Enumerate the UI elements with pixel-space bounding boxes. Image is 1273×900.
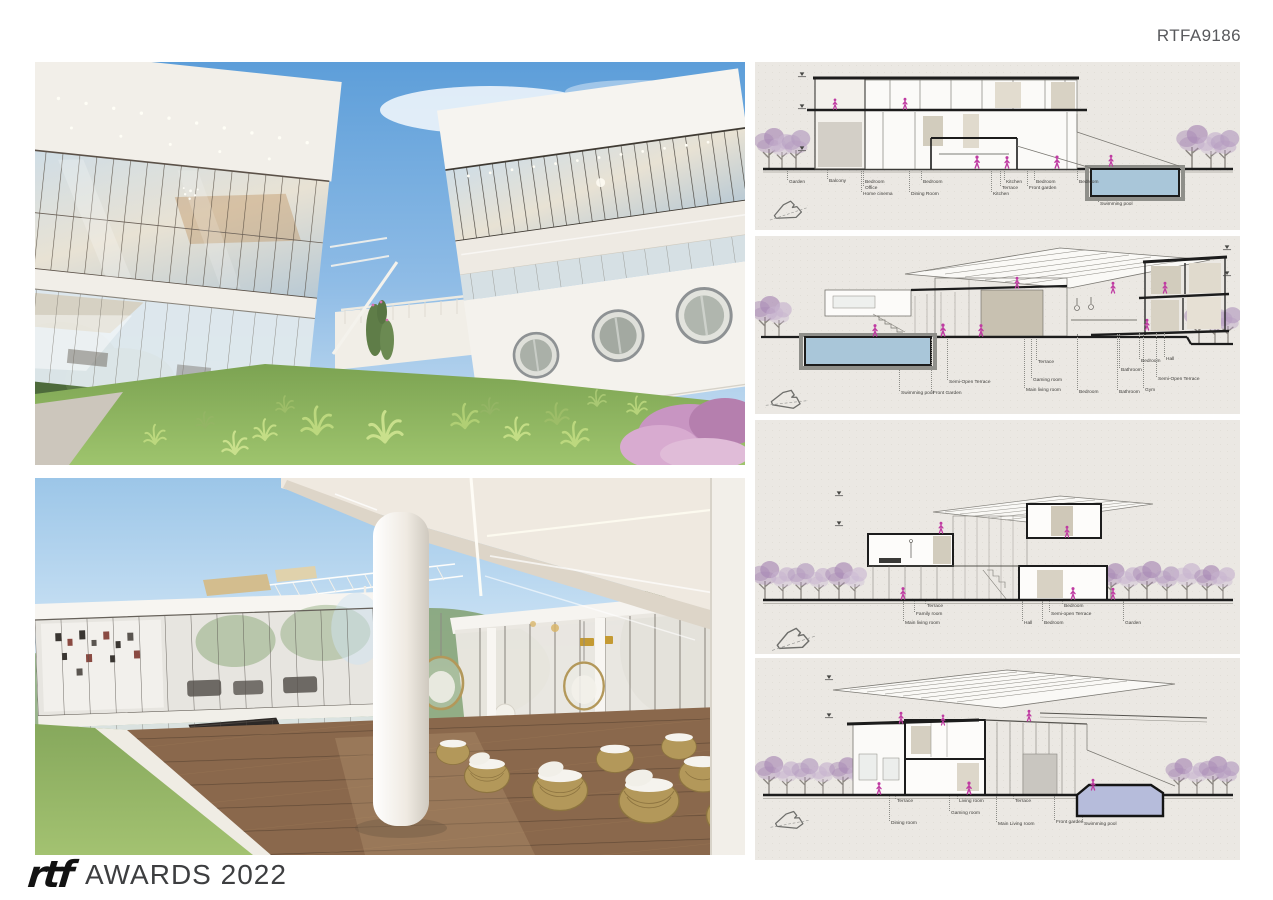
rendering-exterior-courtyard	[35, 62, 745, 465]
section-label: Gaming room	[1033, 378, 1062, 383]
key-plan-icon	[766, 386, 809, 414]
section-label: Hall	[1024, 621, 1032, 626]
section-label: Bedroom	[1064, 604, 1083, 609]
section-label: Family room	[916, 612, 942, 617]
section-label: Semi-Open Terrace	[949, 380, 991, 385]
section-label: Home cinema	[863, 192, 893, 197]
section-panel-2: Swimming pool Front Garden Semi-Open Ter…	[755, 236, 1240, 414]
section-label: Swimming pool	[901, 391, 934, 396]
awards-title: AWARDS 2022	[85, 859, 287, 891]
section-label: Main living room	[1026, 388, 1061, 393]
section-label: Semi-Open Terrace	[1158, 377, 1200, 382]
section-label: Bathroom	[1121, 368, 1142, 373]
exterior-rendering-image	[35, 62, 745, 465]
section-label: Bedroom	[1079, 180, 1098, 185]
swimming-pool	[1091, 169, 1179, 196]
left-wing	[35, 62, 342, 410]
key-plan-icon	[771, 809, 811, 833]
section-label: Kitchen	[993, 192, 1009, 197]
section-label: Front garden	[1029, 186, 1056, 191]
sheet-code: RTFA9186	[1157, 26, 1241, 46]
section-label: Swimming pool	[1100, 202, 1133, 207]
section-label: Bedroom	[1141, 359, 1160, 364]
section-label: Terrace	[1002, 186, 1018, 191]
key-plan-icon	[770, 201, 808, 220]
swimming-pool	[805, 337, 931, 365]
terrace-rendering-image	[35, 478, 745, 855]
section-label: Bedroom	[1044, 621, 1063, 626]
section-label: Front garden	[1056, 820, 1083, 825]
swimming-pool	[1077, 785, 1163, 816]
section-panel-1: Garden Balcony Bedroom Office Home cinem…	[755, 62, 1240, 230]
section-label: Terrace	[927, 604, 943, 609]
section-label: Office	[865, 186, 877, 191]
section-label: Hall	[1166, 357, 1174, 362]
section-drawing-4	[755, 658, 1240, 860]
section-label: Terrace	[1038, 360, 1054, 365]
section-label: Kitchen	[1006, 180, 1022, 185]
section-drawing-2	[755, 236, 1240, 414]
section-label: Bedroom	[1079, 390, 1098, 395]
section-label: Bedroom	[923, 180, 942, 185]
footer: rtf AWARDS 2022	[28, 853, 287, 896]
near-fascia	[711, 478, 745, 855]
section-label: Gaming room	[951, 811, 980, 816]
section-drawing-1	[755, 62, 1240, 230]
section-label: Gym	[1145, 388, 1155, 393]
section-label: Main living room	[905, 621, 940, 626]
cantilever-roof	[833, 670, 1175, 708]
section-label: Bedroom	[865, 180, 884, 185]
section-label: Garden	[1125, 621, 1141, 626]
section-label: Front Garden	[933, 391, 962, 396]
section-label: Terrace	[1015, 799, 1031, 804]
section-label: Garden	[789, 180, 805, 185]
rtf-logo: rtf	[26, 853, 74, 896]
section-panel-4: Dining room Terrace Gaming room Living r…	[755, 658, 1240, 860]
award-board: { "board": { "code": "RTFA9186", "footer…	[0, 0, 1273, 900]
section-panel-3: Main living room Family room Terrace Hal…	[755, 420, 1240, 654]
section-label: Swimming pool	[1084, 822, 1117, 827]
section-label: Main Living room	[998, 822, 1035, 827]
section-drawing-3	[755, 420, 1240, 654]
section-label: Bathroom	[1119, 390, 1140, 395]
rendering-covered-terrace	[35, 478, 745, 855]
section-label: Semi-open Terrace	[1051, 612, 1091, 617]
section-label: Terrace	[897, 799, 913, 804]
section-label: Balcony	[829, 179, 846, 184]
right-wing	[437, 68, 745, 423]
section-label: Living room	[959, 799, 984, 804]
section-label: Dining Room	[911, 192, 939, 197]
section-label: Bedroom	[1036, 180, 1055, 185]
section-label: Dining room	[891, 821, 917, 826]
key-plan-icon	[772, 628, 816, 650]
